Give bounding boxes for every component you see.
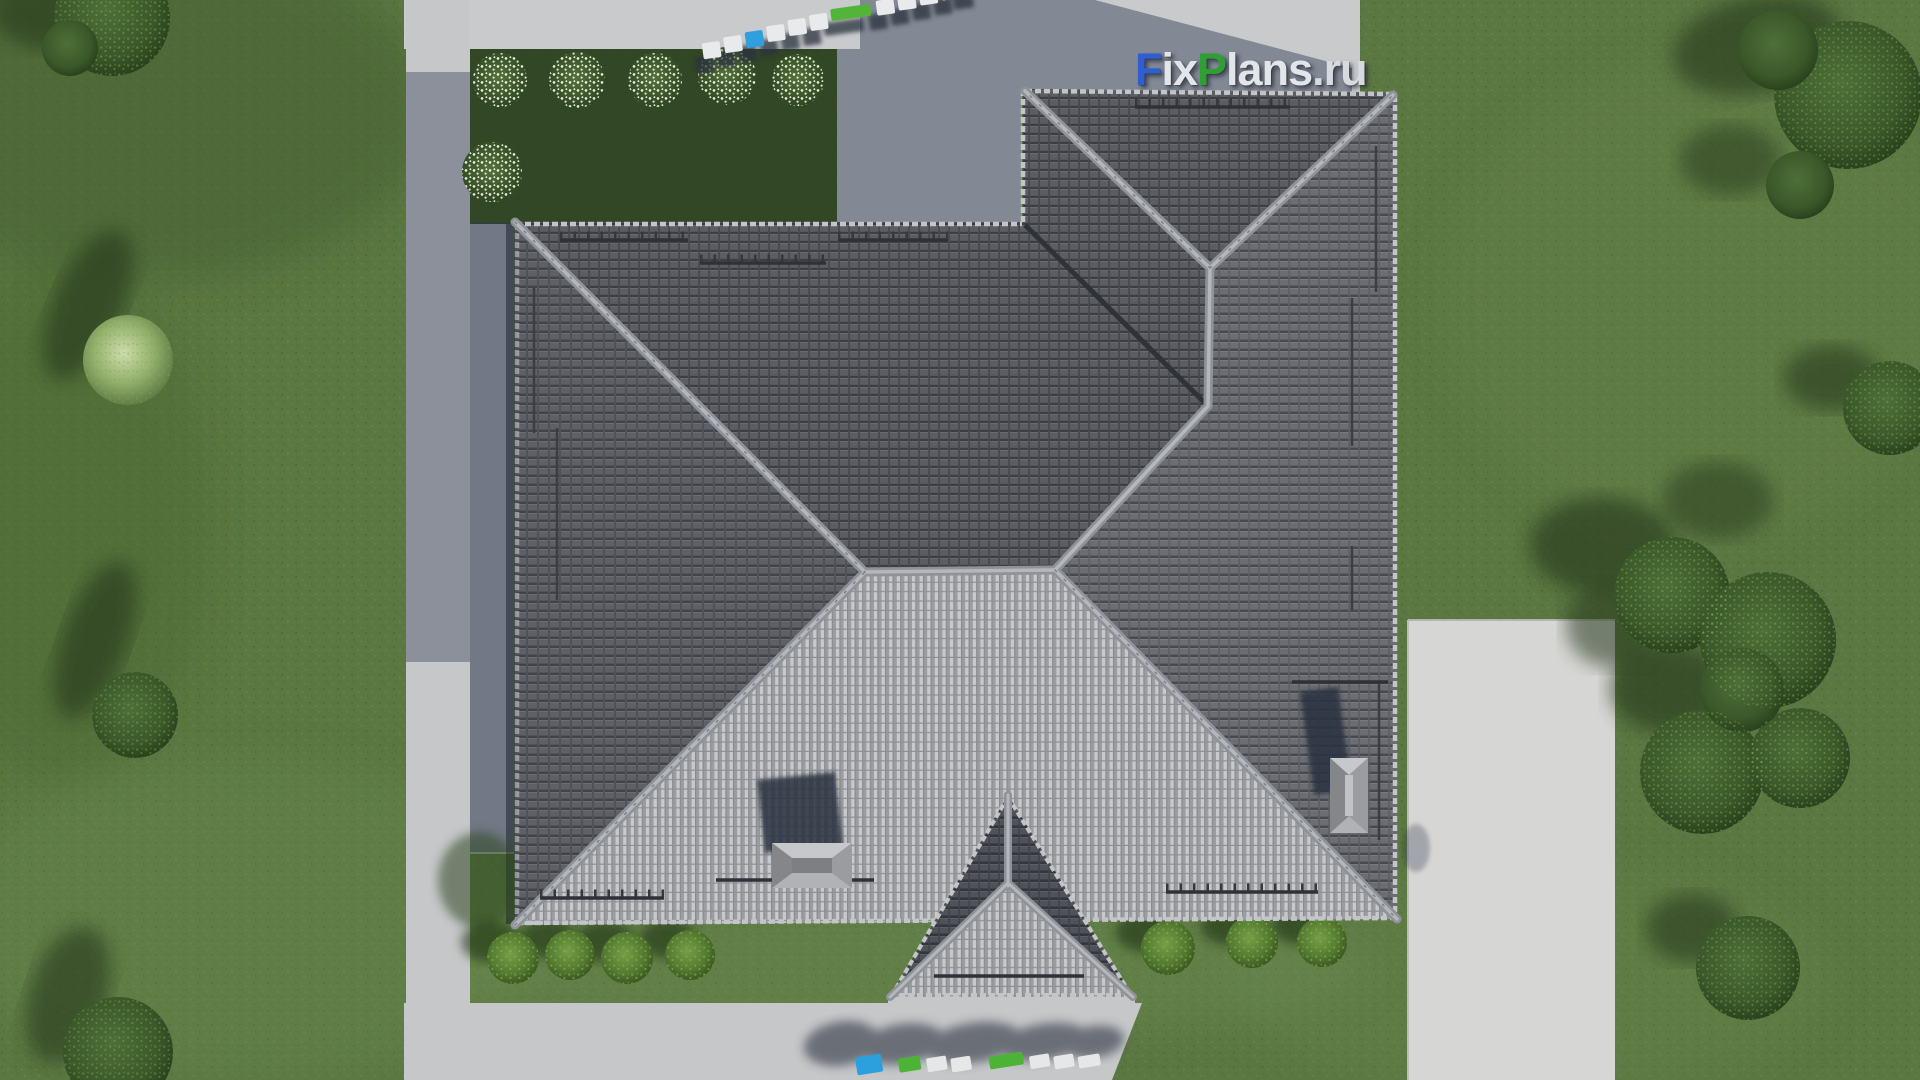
watermark-part-ix: ix: [1162, 44, 1198, 95]
house-roof: [515, 89, 1397, 997]
watermark-part-ru: .ru: [1312, 44, 1367, 95]
flower-bush: [462, 142, 522, 202]
flower-bush: [473, 53, 527, 107]
flower-bush: [628, 53, 682, 107]
bush: [1226, 916, 1278, 968]
watermark-part-f: F: [1135, 44, 1162, 95]
bush: [1297, 917, 1347, 967]
bush: [487, 932, 539, 984]
watermark-part-lans: lans: [1226, 44, 1312, 95]
bush: [665, 930, 715, 980]
render-viewport: FixPlans.ru: [0, 0, 1920, 1080]
watermark-part-p: P: [1197, 44, 1226, 95]
watermark-text: FixPlans.ru: [1135, 44, 1367, 96]
bush: [545, 930, 595, 980]
flower-bush: [549, 52, 605, 108]
bush: [601, 932, 653, 984]
site-plan-render: [0, 0, 1920, 1080]
bush: [1141, 921, 1195, 975]
driveway: [1408, 620, 1615, 1080]
flower-bush: [772, 54, 824, 106]
